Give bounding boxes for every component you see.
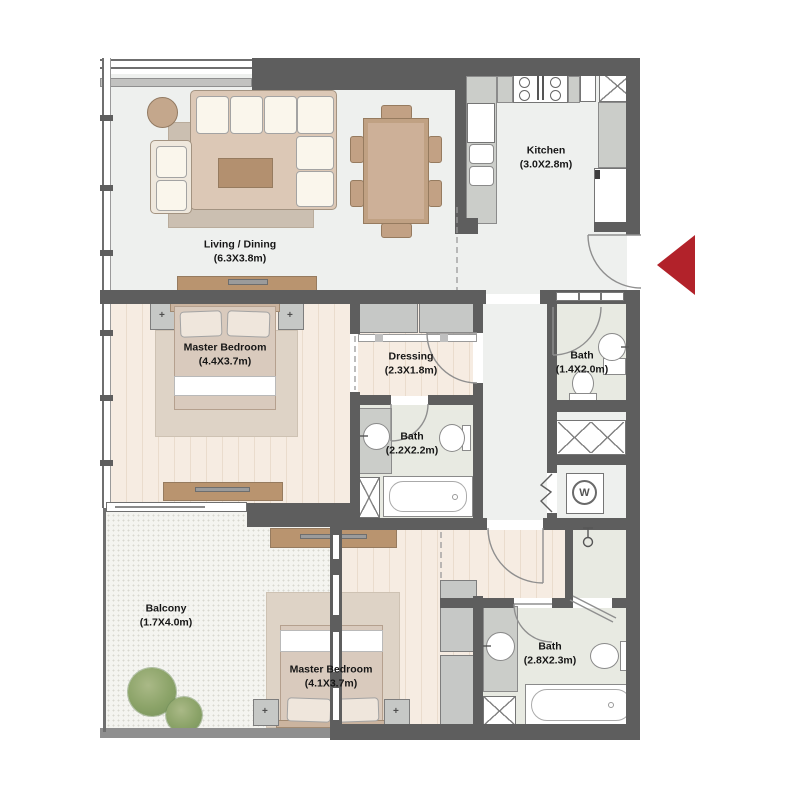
wall [440,598,514,608]
bathtub-inner [531,689,632,721]
window-mullion [100,395,113,401]
stove-burner [550,77,561,88]
wall [547,455,640,465]
room-name: Balcony [140,602,193,616]
room-label-kitchen: Kitchen (3.0X2.8m) [520,144,573,171]
wall [252,58,462,90]
room-label-bath-second: Bath (2.8X2.3m) [524,640,577,667]
room-label-dressing: Dressing (2.3X1.8m) [385,350,438,377]
wardrobe [440,655,477,726]
balcony-railing [103,508,106,732]
room-label-master-bedroom-2: Master Bedroom (4.1X3.7m) [290,663,373,690]
window-mullion [100,185,113,191]
dining-chair [350,136,364,163]
wall [594,222,634,232]
window [333,575,339,615]
room-name: Bath [556,349,609,363]
linen-cabinet-door [558,422,591,453]
dining-chair [350,180,364,207]
transom-mullion [600,292,602,301]
room-name: Master Bedroom [184,341,267,355]
dining-table [363,118,429,224]
room-size: (4.4X3.7m) [184,355,267,369]
wall [565,528,573,600]
window-mullion [100,460,113,466]
hallway-floor [483,304,547,520]
stove-grill [542,76,544,100]
service-shaft [358,477,380,518]
room-label-master-bedroom-1: Master Bedroom (4.4X3.7m) [184,341,267,368]
wall [547,400,640,412]
stove-burner [519,90,530,101]
room-size: (2.8X2.3m) [524,654,577,668]
wall [473,290,483,333]
stove-burner [550,90,561,101]
wall [626,58,640,235]
wall [350,395,391,405]
wall [428,395,483,405]
sofa-cushion [296,136,334,170]
wardrobe-rail-tab [375,334,383,342]
wardrobe [440,580,477,652]
room-size: (1.7X4.0m) [140,616,193,630]
wall [350,304,360,334]
sofa-cushion [264,96,297,134]
wall [108,290,486,304]
dining-chair [428,180,442,207]
room-size: (2.3X1.8m) [385,364,438,378]
window-mullion [100,250,113,256]
coffee-table [218,158,273,188]
tall-cabinet [580,72,596,102]
stove-burner [519,77,530,88]
side-table [147,97,178,128]
kitchen-cabinet [467,103,495,143]
transom-mullion [578,292,580,301]
bedroom-2-entry-floor [473,530,565,598]
washing-machine-drum-icon: W [572,480,597,505]
sliding-window-rail [115,506,205,508]
wall [547,304,557,473]
bed-pillow [227,310,271,337]
transom-window [556,292,624,301]
wall [543,518,640,530]
window-mullion [100,115,113,121]
room-name: Master Bedroom [290,663,373,677]
dresser-tv [195,487,250,492]
kitchen-sink-basin [469,166,494,186]
kitchen-counter-top [568,76,580,103]
window-wall [102,58,111,508]
lamp-icon: + [159,311,165,321]
sofa-cushion [297,96,334,134]
toilet-bowl [439,424,465,452]
window-mullion [100,330,113,336]
tv-screen [228,279,268,285]
armchair-cushion [156,146,187,178]
service-shaft [483,696,516,726]
floor-plan: + + W + + [0,0,800,800]
lamp-icon: + [393,707,399,717]
wall [350,392,360,518]
kitchen-counter-top [497,76,513,103]
sofa-cushion [296,171,334,207]
fridge-handle [595,170,600,179]
room-size: (4.1X3.7m) [290,677,373,691]
lamp-icon: + [262,707,268,717]
window [333,535,339,559]
sofa-cushion [196,96,229,134]
shower-floor [573,530,627,598]
wall [455,218,478,234]
washbasin [486,632,515,661]
balcony-parapet [100,728,330,738]
stove-grill [537,76,539,100]
dining-chair [428,136,442,163]
wall [626,292,640,726]
room-label-balcony: Balcony (1.7X4.0m) [140,602,193,629]
window [333,688,339,720]
wall [455,74,466,224]
linen-cabinet-door [591,422,624,453]
kitchen-sink-basin [469,144,494,164]
bathtub-drain [452,494,458,500]
window-sill [100,78,252,87]
entrance-arrow-icon [657,235,695,295]
room-name: Bath [524,640,577,654]
bed-sheet [174,376,276,396]
room-name: Kitchen [520,144,573,158]
room-name: Bath [386,430,439,444]
room-label-bath-guest: Bath (1.4X2.0m) [556,349,609,376]
room-name: Dressing [385,350,438,364]
wall [612,598,627,608]
room-label-bath-master: Bath (2.2X2.2m) [386,430,439,457]
lamp-icon: + [287,311,293,321]
room-size: (6.3X3.8m) [204,252,276,266]
window [100,59,252,69]
sofa-cushion [230,96,263,134]
wall [462,58,640,76]
wall [330,724,640,740]
room-size: (1.4X2.0m) [556,363,609,377]
bed-pillow [180,310,223,337]
wall [342,518,487,530]
room-name: Living / Dining [204,238,276,252]
wall [473,596,483,726]
bathtub-drain [608,702,614,708]
bed-pillow [287,697,332,723]
toilet-bowl [590,643,619,669]
dining-chair [381,223,412,238]
bed-pillow [336,697,380,722]
wardrobe-rail-tab [440,334,448,342]
room-size: (2.2X2.2m) [386,444,439,458]
armchair-cushion [156,180,187,211]
room-size: (3.0X2.8m) [520,158,573,172]
room-label-living-dining: Living / Dining (6.3X3.8m) [204,238,276,265]
kitchen-counter-right [598,102,627,168]
